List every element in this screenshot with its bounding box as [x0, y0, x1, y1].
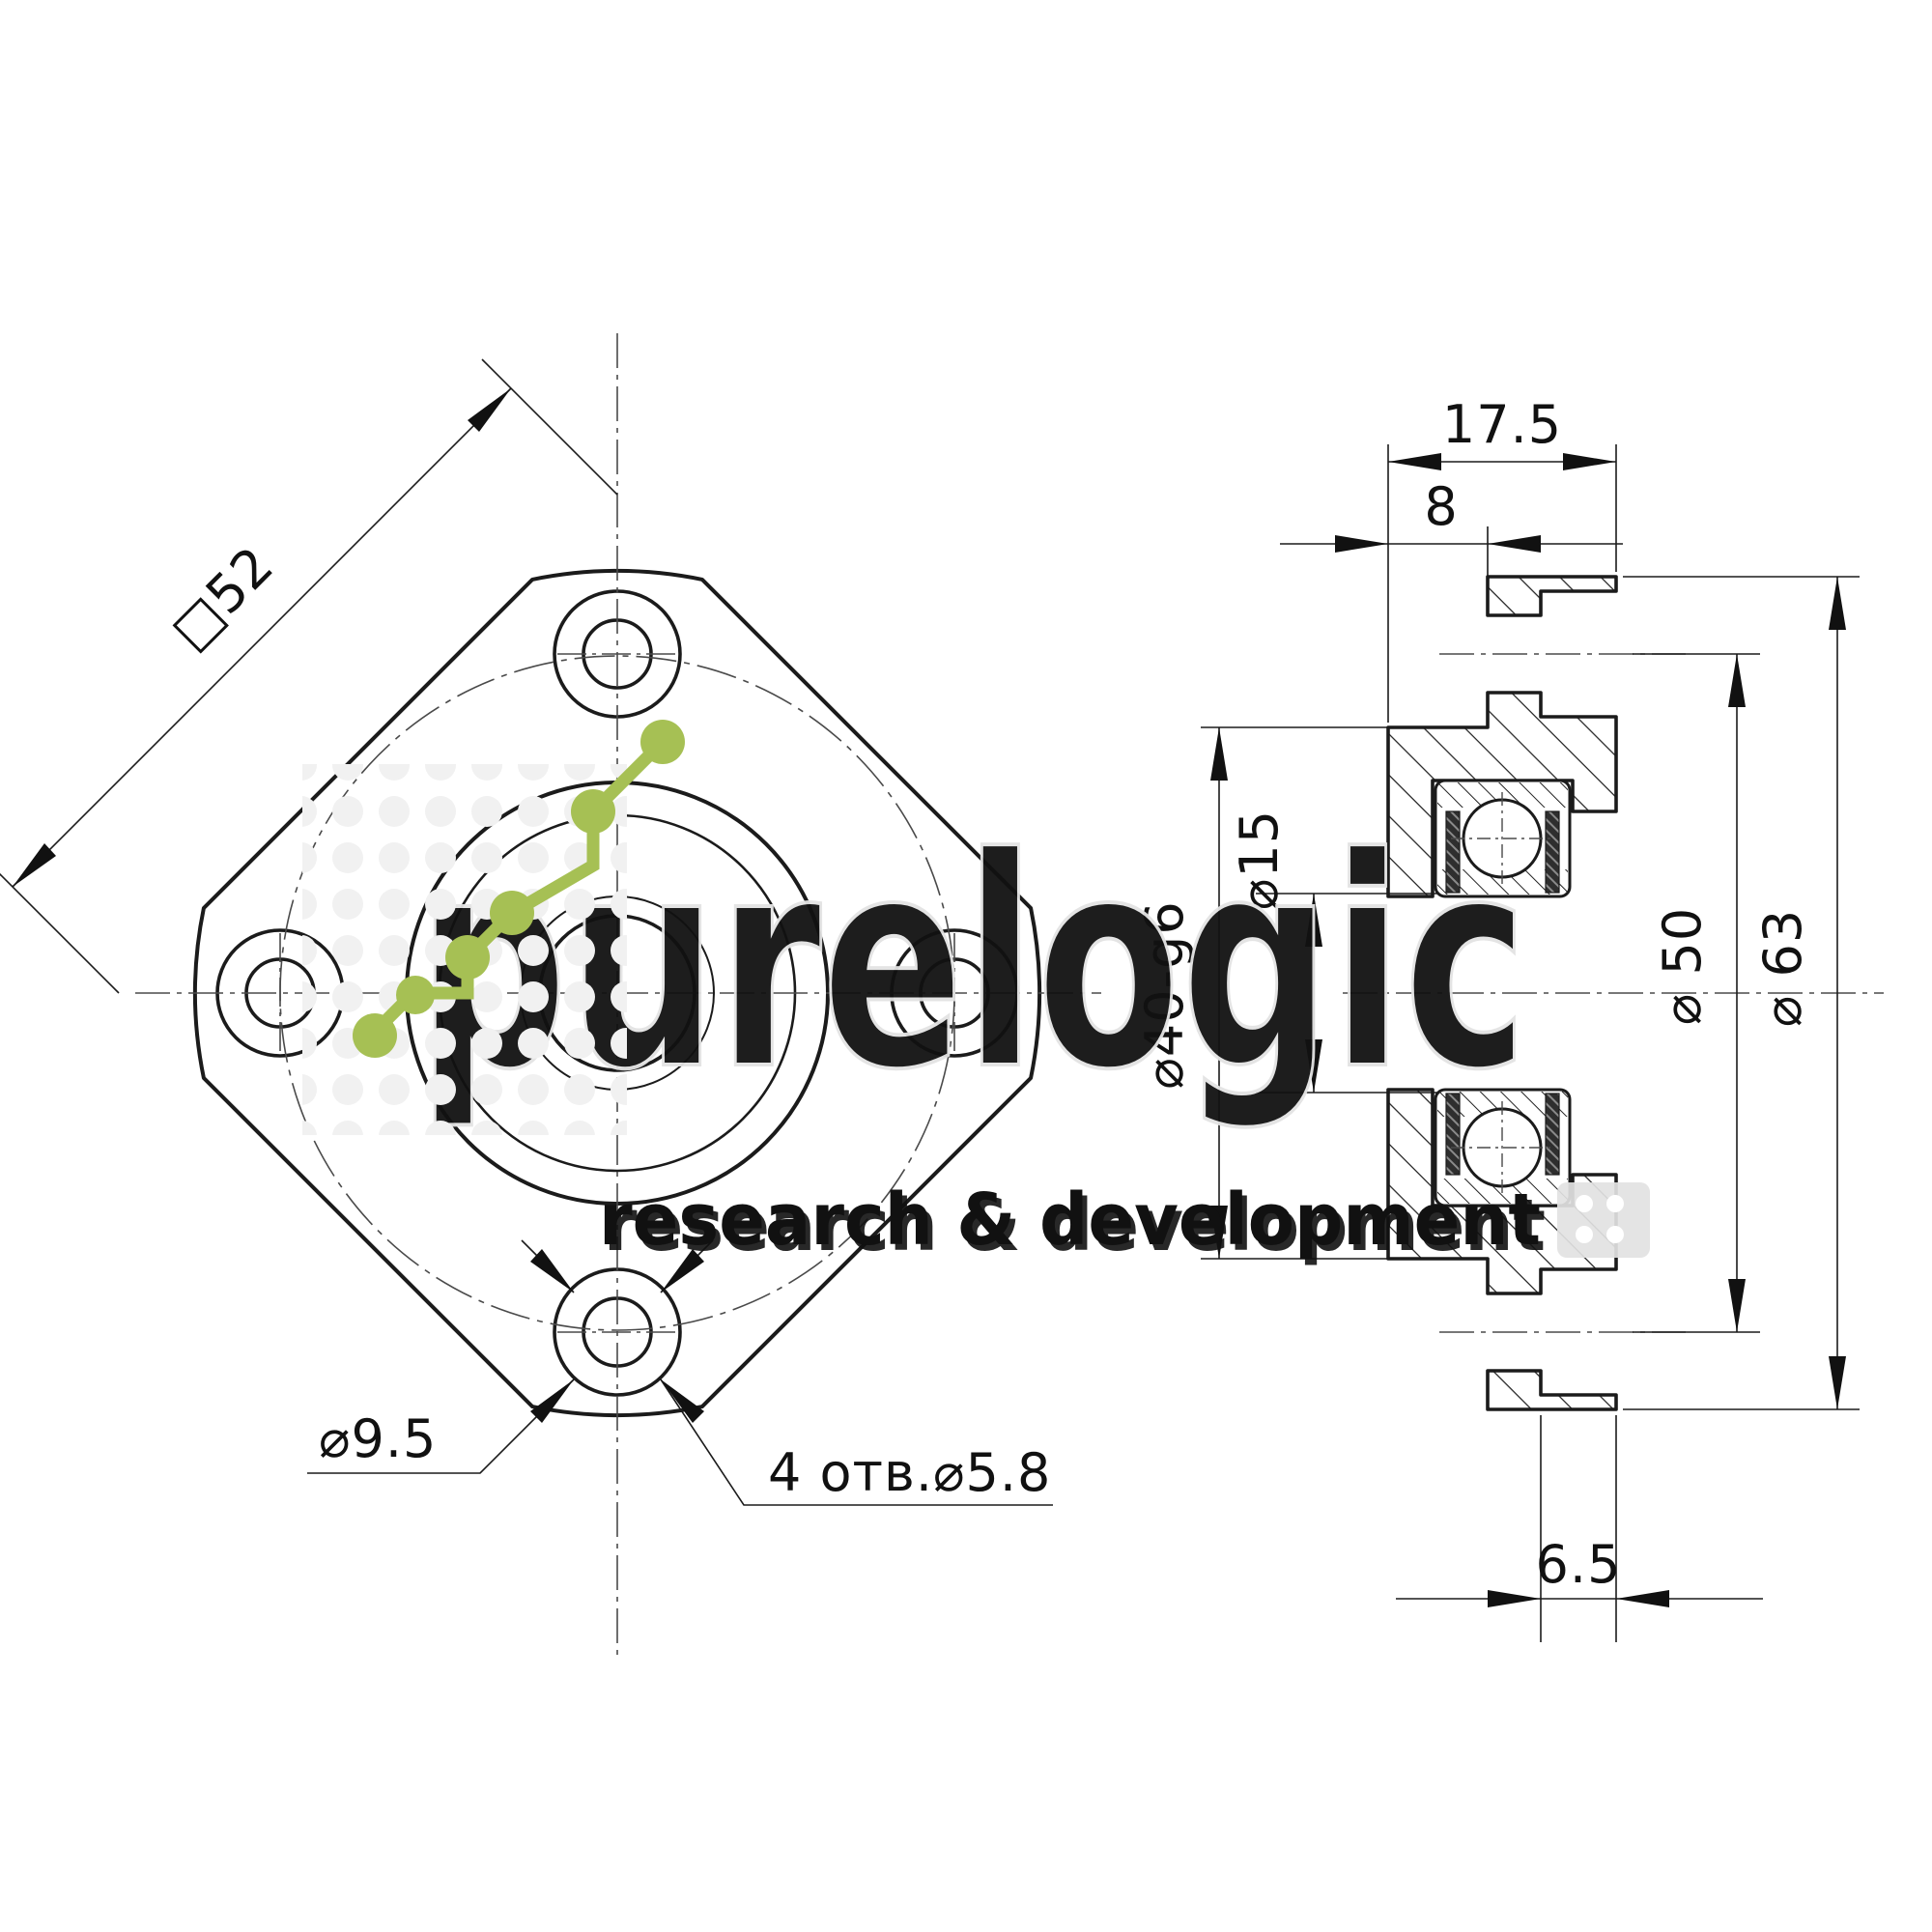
square-size-label: □52 [158, 534, 285, 661]
technical-drawing-page: □52 ⌀9.5 4 отв.⌀5.8 [0, 0, 1932, 1932]
outer-dia-label: ⌀ 63 [1752, 909, 1813, 1027]
total-width-label: 17.5 [1442, 394, 1562, 455]
section-top-block [1488, 577, 1616, 615]
watermark-tagline: research & development [599, 1179, 1541, 1262]
bolt-circle-label: ⌀ 50 [1652, 907, 1713, 1025]
holes-note-label: 4 отв.⌀5.8 [768, 1442, 1051, 1503]
watermark-block-icon [1557, 1182, 1650, 1258]
boss-depth-label: 8 [1424, 476, 1458, 537]
counterbore-dia-label: ⌀9.5 [319, 1408, 437, 1469]
drawing-sheet: □52 ⌀9.5 4 отв.⌀5.8 [0, 0, 1932, 1932]
section-bottom-block [1488, 1371, 1616, 1409]
counterbore-depth-label: 6.5 [1536, 1534, 1622, 1595]
